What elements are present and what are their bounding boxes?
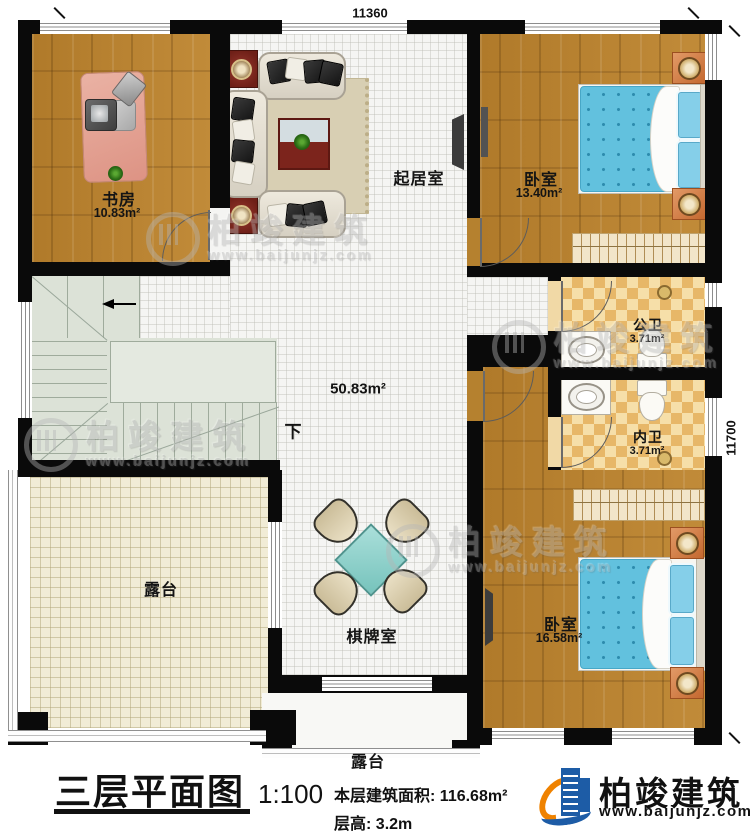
plan-title: 三层平面图 bbox=[55, 763, 245, 815]
wall-bedroom2-left bbox=[467, 367, 483, 728]
window-bedroom1-top bbox=[525, 20, 660, 34]
public-bath-label: 公卫 bbox=[633, 315, 663, 335]
window-bedroom2-bottom2 bbox=[612, 728, 694, 745]
wall-gameroom-left-upper bbox=[268, 470, 282, 522]
title-underline bbox=[54, 809, 250, 814]
terrace-floor bbox=[30, 477, 268, 728]
private-bath-area: 3.71m² bbox=[630, 445, 665, 457]
bedroom2-wardrobe bbox=[573, 489, 705, 521]
public-bath-drain-icon bbox=[657, 285, 672, 300]
dimension-right: 11700 bbox=[724, 420, 739, 455]
study-plant-icon bbox=[108, 166, 123, 181]
dim-tick-tr bbox=[687, 7, 699, 19]
stairs-upper-flight bbox=[32, 276, 140, 338]
tv-living-icon bbox=[452, 114, 464, 170]
terrace-label: 露台 bbox=[144, 576, 178, 600]
floor-area-line: 本层建筑面积: 116.68m² bbox=[334, 782, 507, 806]
public-bath-sink-icon bbox=[568, 336, 605, 364]
dim-tick-tl bbox=[53, 7, 65, 19]
sofa-top bbox=[258, 52, 346, 100]
brand-logo-icon bbox=[541, 766, 595, 822]
coffee-table-plant-icon bbox=[294, 134, 310, 150]
stair-top-landing-floor bbox=[140, 276, 230, 338]
floor-height-line: 层高: 3.2m bbox=[334, 810, 412, 834]
bottom-terrace-label: 露台 bbox=[351, 748, 385, 772]
living-room-label: 起居室 bbox=[393, 165, 444, 189]
monitor-screen bbox=[91, 105, 108, 122]
bedroom2-area: 16.58m² bbox=[536, 631, 583, 645]
brand-site: www.baijunjz.com bbox=[599, 803, 750, 820]
door-gap-bedroom2 bbox=[467, 371, 483, 421]
window-gameroom-bottom bbox=[322, 677, 432, 691]
door-gap-study bbox=[210, 208, 230, 260]
plan-scale: 1:100 bbox=[258, 779, 323, 810]
side-table-lamp-icon bbox=[231, 59, 252, 80]
nightstand2 bbox=[672, 188, 706, 220]
side-table-lamp2-icon bbox=[231, 205, 252, 226]
door-gap-public-bath bbox=[548, 281, 561, 331]
window-study-top bbox=[40, 20, 170, 34]
tv-bedroom2-icon bbox=[485, 588, 493, 646]
hall-area-label: 50.83m² bbox=[330, 381, 386, 398]
tv-bedroom1-icon bbox=[481, 107, 488, 157]
stairs-down-label: 下 bbox=[285, 418, 302, 443]
wall-hall-block bbox=[467, 335, 561, 367]
window-bedroom1-right bbox=[705, 34, 722, 80]
game-room-label: 棋牌室 bbox=[346, 623, 397, 647]
dim-tick-r-bottom bbox=[728, 732, 740, 744]
sofa-bottom bbox=[258, 190, 346, 238]
terrace-railing-bottom bbox=[8, 730, 266, 742]
hallway-floor bbox=[467, 277, 548, 335]
floor-area-value: 116.68m² bbox=[440, 788, 508, 805]
dimension-top: 11360 bbox=[352, 6, 387, 21]
nightstand bbox=[672, 52, 706, 84]
window-public-bath-right bbox=[705, 283, 722, 307]
floor-height-label: 层高: bbox=[334, 816, 371, 833]
bed2-pillow2 bbox=[668, 615, 696, 667]
dim-tick-r-top bbox=[728, 25, 740, 37]
door-gap-bedroom1 bbox=[467, 218, 480, 266]
floor-area-label: 本层建筑面积: bbox=[334, 788, 435, 805]
wall-stairs-terrace bbox=[18, 460, 280, 477]
study-area: 10.83m² bbox=[94, 206, 141, 220]
stairs-landing bbox=[110, 341, 276, 403]
door-leaf-study bbox=[208, 210, 210, 260]
window-stairs-left bbox=[18, 302, 32, 418]
door-leaf-bedroom1 bbox=[480, 218, 482, 266]
public-bath-area: 3.71m² bbox=[630, 333, 665, 345]
private-bath-label: 内卫 bbox=[633, 427, 663, 447]
floor-plan-page: 书房 10.83m² 起居室 卧室 13.40m² 公卫 3.71m² 内卫 3… bbox=[0, 0, 750, 833]
door-leaf-public-bath bbox=[561, 281, 563, 331]
bed2-pillow bbox=[668, 563, 696, 615]
bedroom1-wardrobe bbox=[572, 233, 707, 264]
wall-study-bottom bbox=[18, 262, 230, 276]
window-gameroom-terrace bbox=[268, 522, 282, 628]
wall-bedroom1-bottom bbox=[467, 263, 722, 277]
nightstand4 bbox=[670, 667, 704, 699]
door-gap-private-bath bbox=[548, 417, 561, 467]
stairs-direction-line bbox=[113, 303, 136, 305]
stairs-left-flight bbox=[32, 338, 107, 467]
floor-height-value: 3.2m bbox=[376, 816, 412, 833]
bedroom1-area: 13.40m² bbox=[516, 186, 563, 200]
window-living-top bbox=[282, 20, 407, 34]
window-private-bath-right bbox=[705, 398, 722, 456]
nightstand3 bbox=[670, 527, 704, 559]
terrace-railing-left bbox=[8, 470, 18, 742]
wall-right bbox=[705, 20, 722, 745]
wall-bath-divider bbox=[548, 367, 722, 380]
door-leaf-private-bath bbox=[561, 417, 563, 467]
private-bath-sink-icon bbox=[568, 383, 605, 411]
window-bedroom2-bottom1 bbox=[492, 728, 564, 745]
door-leaf-bedroom2 bbox=[483, 371, 485, 421]
